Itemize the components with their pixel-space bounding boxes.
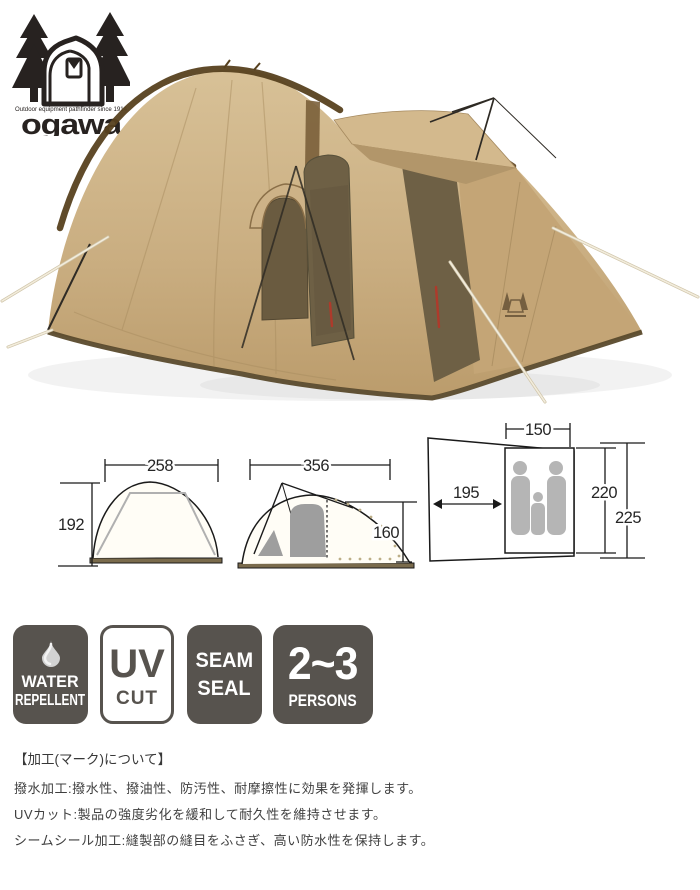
front-width-label: 258 [147, 457, 173, 475]
badge-water-line2: REPELLENT [15, 693, 85, 709]
badge-uv-line1: UV [109, 644, 165, 684]
plan-inner-depth-label: 220 [591, 484, 617, 502]
badge-seam-line2: SEAL [198, 678, 251, 699]
notes-heading: 【加工(マーク)について】 [14, 748, 654, 768]
badge-water-repellent: WATER REPELLENT [13, 625, 88, 724]
plan-vestibule-label: 195 [453, 484, 479, 502]
product-photo [0, 30, 700, 430]
badge-uv-line2: CUT [116, 689, 158, 708]
badge-uv-cut: UV CUT [100, 625, 174, 724]
processing-notes: 【加工(マーク)について】 撥水加工:撥水性、撥油性、防汚性、耐摩擦性に効果を発… [14, 748, 654, 856]
badge-persons-line2: PERSONS [289, 692, 357, 709]
plan-inner-width-label: 150 [525, 421, 551, 439]
product-page: { "brand": { "logo_icon": "tent-and-tree… [0, 0, 700, 890]
badge-persons-line1: 2~3 [288, 641, 358, 686]
front-view-diagram: 258 192 [58, 457, 222, 566]
badge-persons: 2~3 PERSONS [273, 625, 373, 724]
dimension-diagrams: 258 192 356 160 [0, 420, 700, 605]
badge-seam-seal: SEAM SEAL [187, 625, 262, 724]
badge-seam-line1: SEAM [196, 650, 254, 671]
front-height-label: 192 [58, 516, 84, 534]
floor-plan-diagram: 150 195 220 225 [428, 421, 645, 561]
note-line: UVカット:製品の強度劣化を緩和して耐久性を維持させます。 [14, 804, 654, 823]
side-height-label: 160 [373, 524, 399, 542]
badge-water-line1: WATER [22, 673, 79, 690]
plan-total-depth-label: 225 [615, 509, 641, 527]
note-line: 撥水加工:撥水性、撥油性、防汚性、耐摩擦性に効果を発揮します。 [14, 778, 654, 797]
note-line: シームシール加工:縫製部の縫目をふさぎ、高い防水性を保持します。 [14, 830, 654, 849]
side-view-diagram: 356 160 [238, 457, 417, 568]
side-width-label: 356 [303, 457, 329, 475]
water-drop-icon [40, 640, 62, 668]
